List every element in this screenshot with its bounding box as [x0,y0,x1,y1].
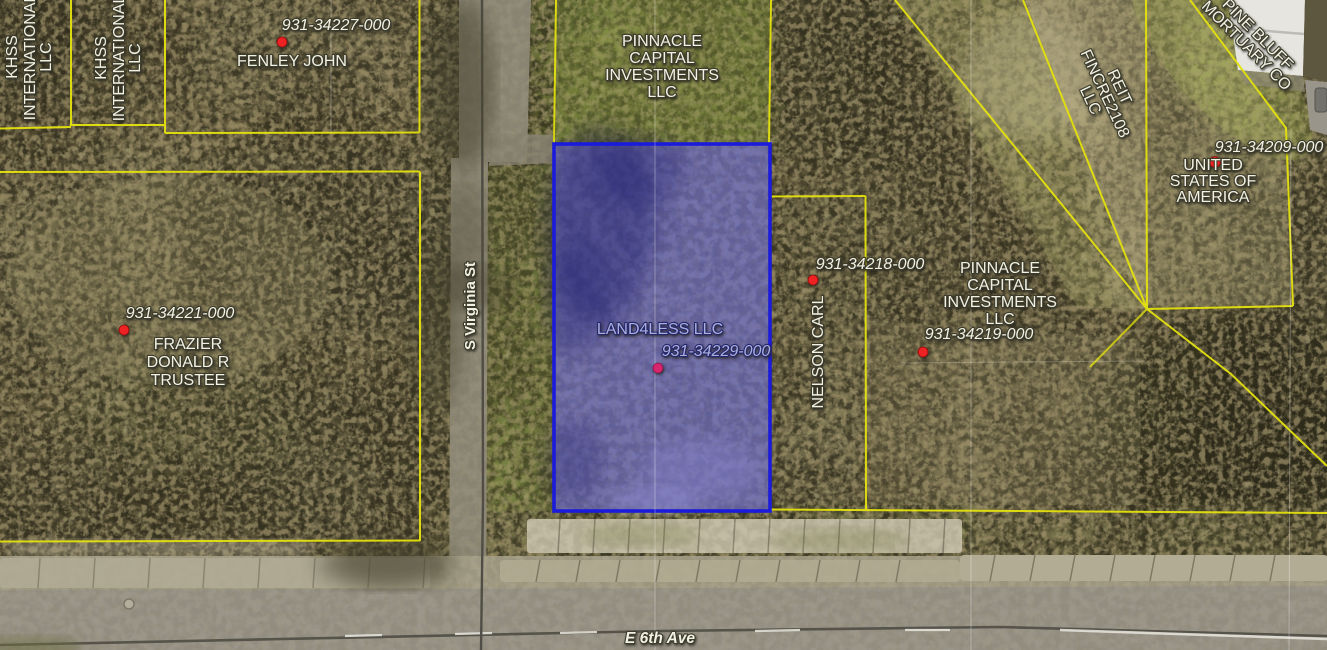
svg-text:AMERICA: AMERICA [1177,189,1250,206]
svg-text:931-34229-000: 931-34229-000 [662,343,771,360]
svg-text:FRAZIER: FRAZIER [154,336,222,353]
svg-text:PINNACLE: PINNACLE [622,33,702,50]
svg-text:KHSS: KHSS [93,36,110,80]
svg-text:LLC: LLC [127,43,144,72]
svg-text:S Virginia St: S Virginia St [462,262,479,350]
svg-text:NELSON CARL: NELSON CARL [810,295,827,408]
svg-text:INTERNATIONAL: INTERNATIONAL [22,0,39,120]
svg-text:E 6th Ave: E 6th Ave [625,630,695,647]
svg-text:INTERNATIONAL: INTERNATIONAL [111,0,128,121]
svg-text:TRUSTEE: TRUSTEE [151,372,226,389]
svg-text:931-34209-000: 931-34209-000 [1215,139,1324,156]
svg-text:STATES OF: STATES OF [1170,173,1257,190]
svg-text:LAND4LESS LLC: LAND4LESS LLC [597,321,723,338]
svg-text:CAPITAL: CAPITAL [629,50,695,67]
svg-text:FENLEY JOHN: FENLEY JOHN [237,53,347,70]
svg-text:KHSS: KHSS [4,35,21,79]
svg-text:INVESTMENTS: INVESTMENTS [943,294,1057,311]
svg-text:INVESTMENTS: INVESTMENTS [605,67,719,84]
svg-text:931-34218-000: 931-34218-000 [816,256,925,273]
svg-text:PINNACLE: PINNACLE [960,260,1040,277]
svg-text:931-34221-000: 931-34221-000 [126,305,235,322]
svg-text:931-34219-000: 931-34219-000 [925,326,1034,343]
svg-text:LLC: LLC [647,84,676,101]
svg-text:UNITED: UNITED [1183,157,1243,174]
svg-text:931-34227-000: 931-34227-000 [282,17,391,34]
svg-text:DONALD R: DONALD R [147,354,230,371]
svg-text:CAPITAL: CAPITAL [967,277,1033,294]
svg-text:LLC: LLC [38,42,55,71]
